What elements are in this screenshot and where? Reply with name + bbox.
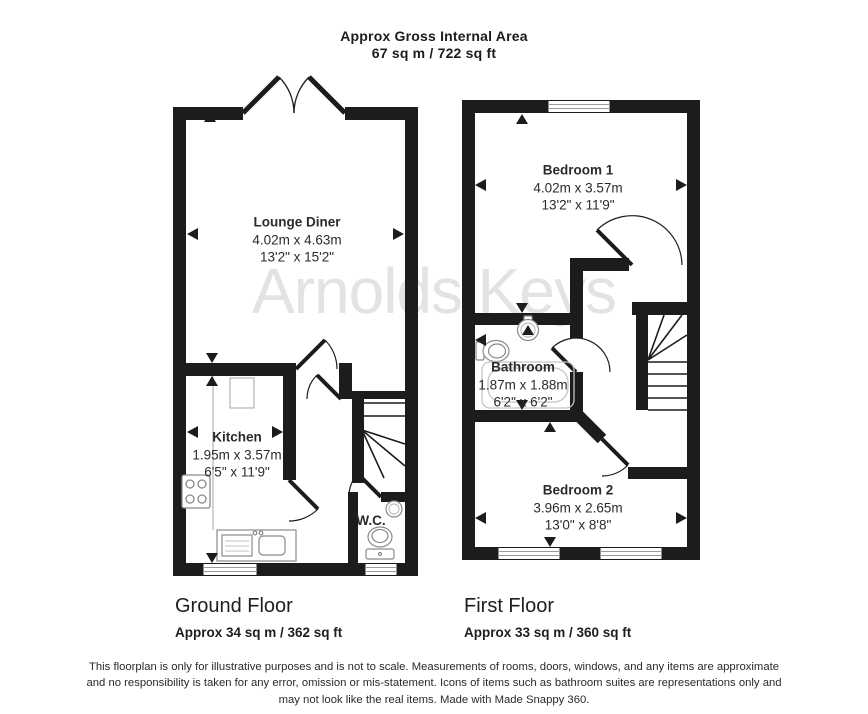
room-label-bedroom-2: Bedroom 2 3.96m x 2.65m 13'0" x 8'8": [533, 482, 622, 535]
disclaimer-line-2: and no responsibility is taken for any e…: [0, 675, 868, 691]
window-icon-bedroom2-right: [600, 548, 662, 560]
room-dims-metric: 3.96m x 2.65m: [533, 499, 622, 517]
disclaimer-text: This floorplan is only for illustrative …: [0, 659, 868, 708]
window-icon-bedroom1: [548, 101, 610, 113]
page-title: Approx Gross Internal Area 67 sq m / 722…: [0, 28, 868, 62]
ground-floor-area: Approx 34 sq m / 362 sq ft: [175, 625, 342, 640]
first-floor-area: Approx 33 sq m / 360 sq ft: [464, 625, 631, 640]
title-line-1: Approx Gross Internal Area: [0, 28, 868, 45]
room-label-wc: W.C.: [356, 512, 385, 530]
room-dims-imperial: 13'2" x 15'2": [252, 249, 341, 267]
room-name: Bedroom 2: [533, 482, 622, 500]
room-name: W.C.: [356, 512, 385, 530]
ground-floor-plan: [173, 62, 418, 576]
ground-floor-name: Ground Floor: [175, 595, 342, 618]
room-label-lounge-diner: Lounge Diner 4.02m x 4.63m 13'2" x 15'2": [252, 214, 341, 267]
room-name: Kitchen: [192, 429, 281, 447]
title-line-2: 67 sq m / 722 sq ft: [0, 45, 868, 62]
room-dims-metric: 4.02m x 3.57m: [533, 179, 622, 197]
room-dims-imperial: 13'2" x 11'9": [533, 197, 622, 215]
room-name: Bedroom 1: [533, 162, 622, 180]
corner-basin-icon: [386, 501, 402, 517]
room-label-kitchen: Kitchen 1.95m x 3.57m 6'5" x 11'9": [192, 429, 281, 482]
appliance-icon: [230, 378, 254, 408]
window-icon-wc: [365, 564, 397, 576]
floorplan-page: Approx Gross Internal Area 67 sq m / 722…: [0, 0, 868, 714]
ground-floor-caption: Ground Floor Approx 34 sq m / 362 sq ft: [175, 595, 342, 640]
first-floor-caption: First Floor Approx 33 sq m / 360 sq ft: [464, 595, 631, 640]
room-dims-metric: 1.87m x 1.88m: [478, 376, 567, 394]
room-dims-imperial: 13'0" x 8'8": [533, 517, 622, 535]
watermark-text: Arnolds|Keys: [0, 254, 868, 328]
door-swing-icons-first: [552, 216, 682, 476]
room-label-bedroom-1: Bedroom 1 4.02m x 3.57m 13'2" x 11'9": [533, 162, 622, 215]
french-doors-icon: [243, 77, 345, 113]
sink-icon: [217, 530, 296, 561]
room-dims-imperial: 6'5" x 11'9": [192, 464, 281, 482]
angled-wall: [579, 416, 602, 439]
room-dims-imperial: 6'2" x 6'2": [478, 394, 567, 412]
window-icon-bedroom2-left: [498, 548, 560, 560]
toilet-icon: [366, 527, 394, 559]
door-swing-icons-ground: [289, 340, 381, 521]
room-dims-metric: 4.02m x 4.63m: [252, 231, 341, 249]
disclaimer-line-3: may not look like the real items. Made w…: [0, 692, 868, 708]
stairs-icon-ground: [362, 403, 405, 478]
room-name: Lounge Diner: [252, 214, 341, 232]
disclaimer-line-1: This floorplan is only for illustrative …: [0, 659, 868, 675]
room-dims-metric: 1.95m x 3.57m: [192, 446, 281, 464]
room-label-bathroom: Bathroom 1.87m x 1.88m 6'2" x 6'2": [478, 359, 567, 412]
stairs-icon-first: [648, 315, 687, 410]
first-floor-name: First Floor: [464, 595, 631, 618]
room-name: Bathroom: [478, 359, 567, 377]
window-icon-kitchen: [203, 564, 257, 576]
measurement-arrow-icons-ground: [187, 112, 404, 563]
